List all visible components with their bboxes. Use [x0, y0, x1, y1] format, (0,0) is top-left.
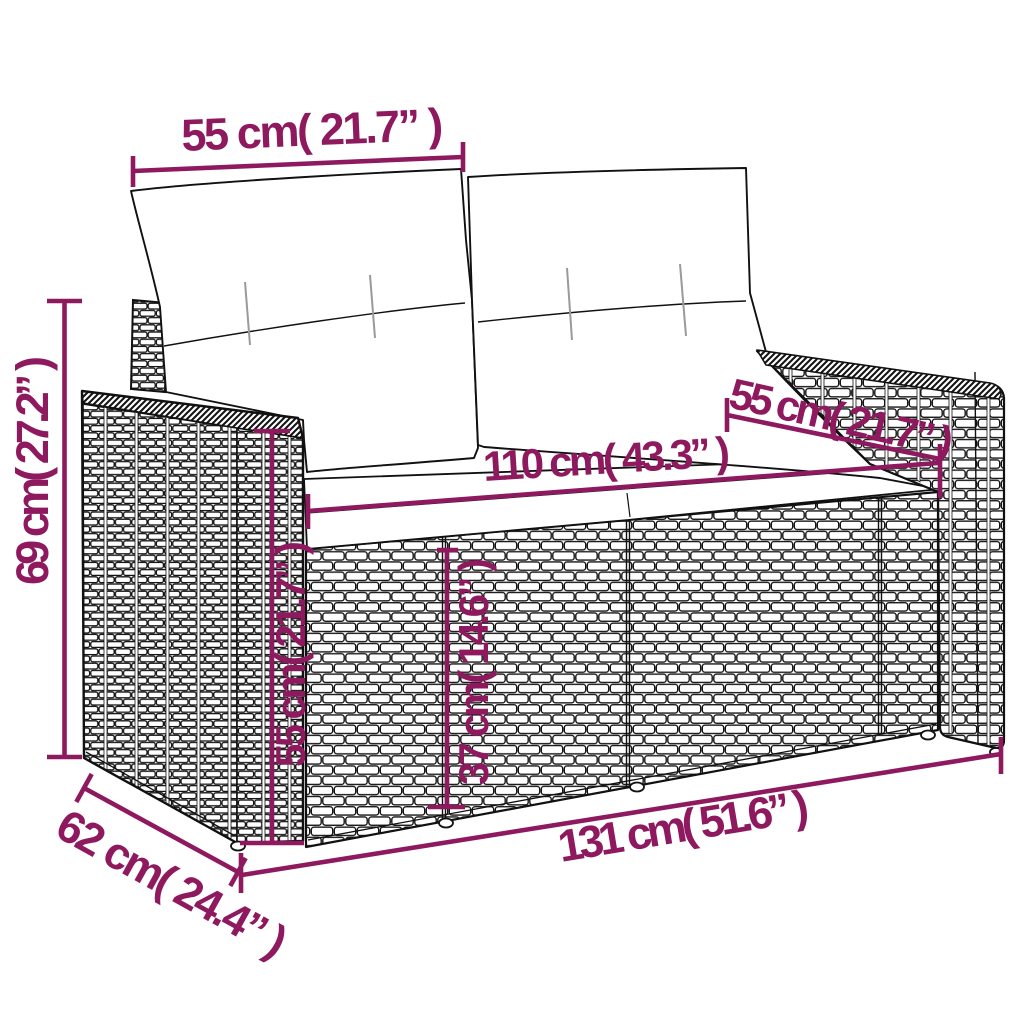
- svg-text:69 cm( 27.2” ): 69 cm( 27.2” ): [7, 356, 58, 585]
- svg-text:37 cm( 14.6” ): 37 cm( 14.6” ): [450, 558, 497, 785]
- svg-text:55 cm( 21.7” ): 55 cm( 21.7” ): [267, 541, 314, 767]
